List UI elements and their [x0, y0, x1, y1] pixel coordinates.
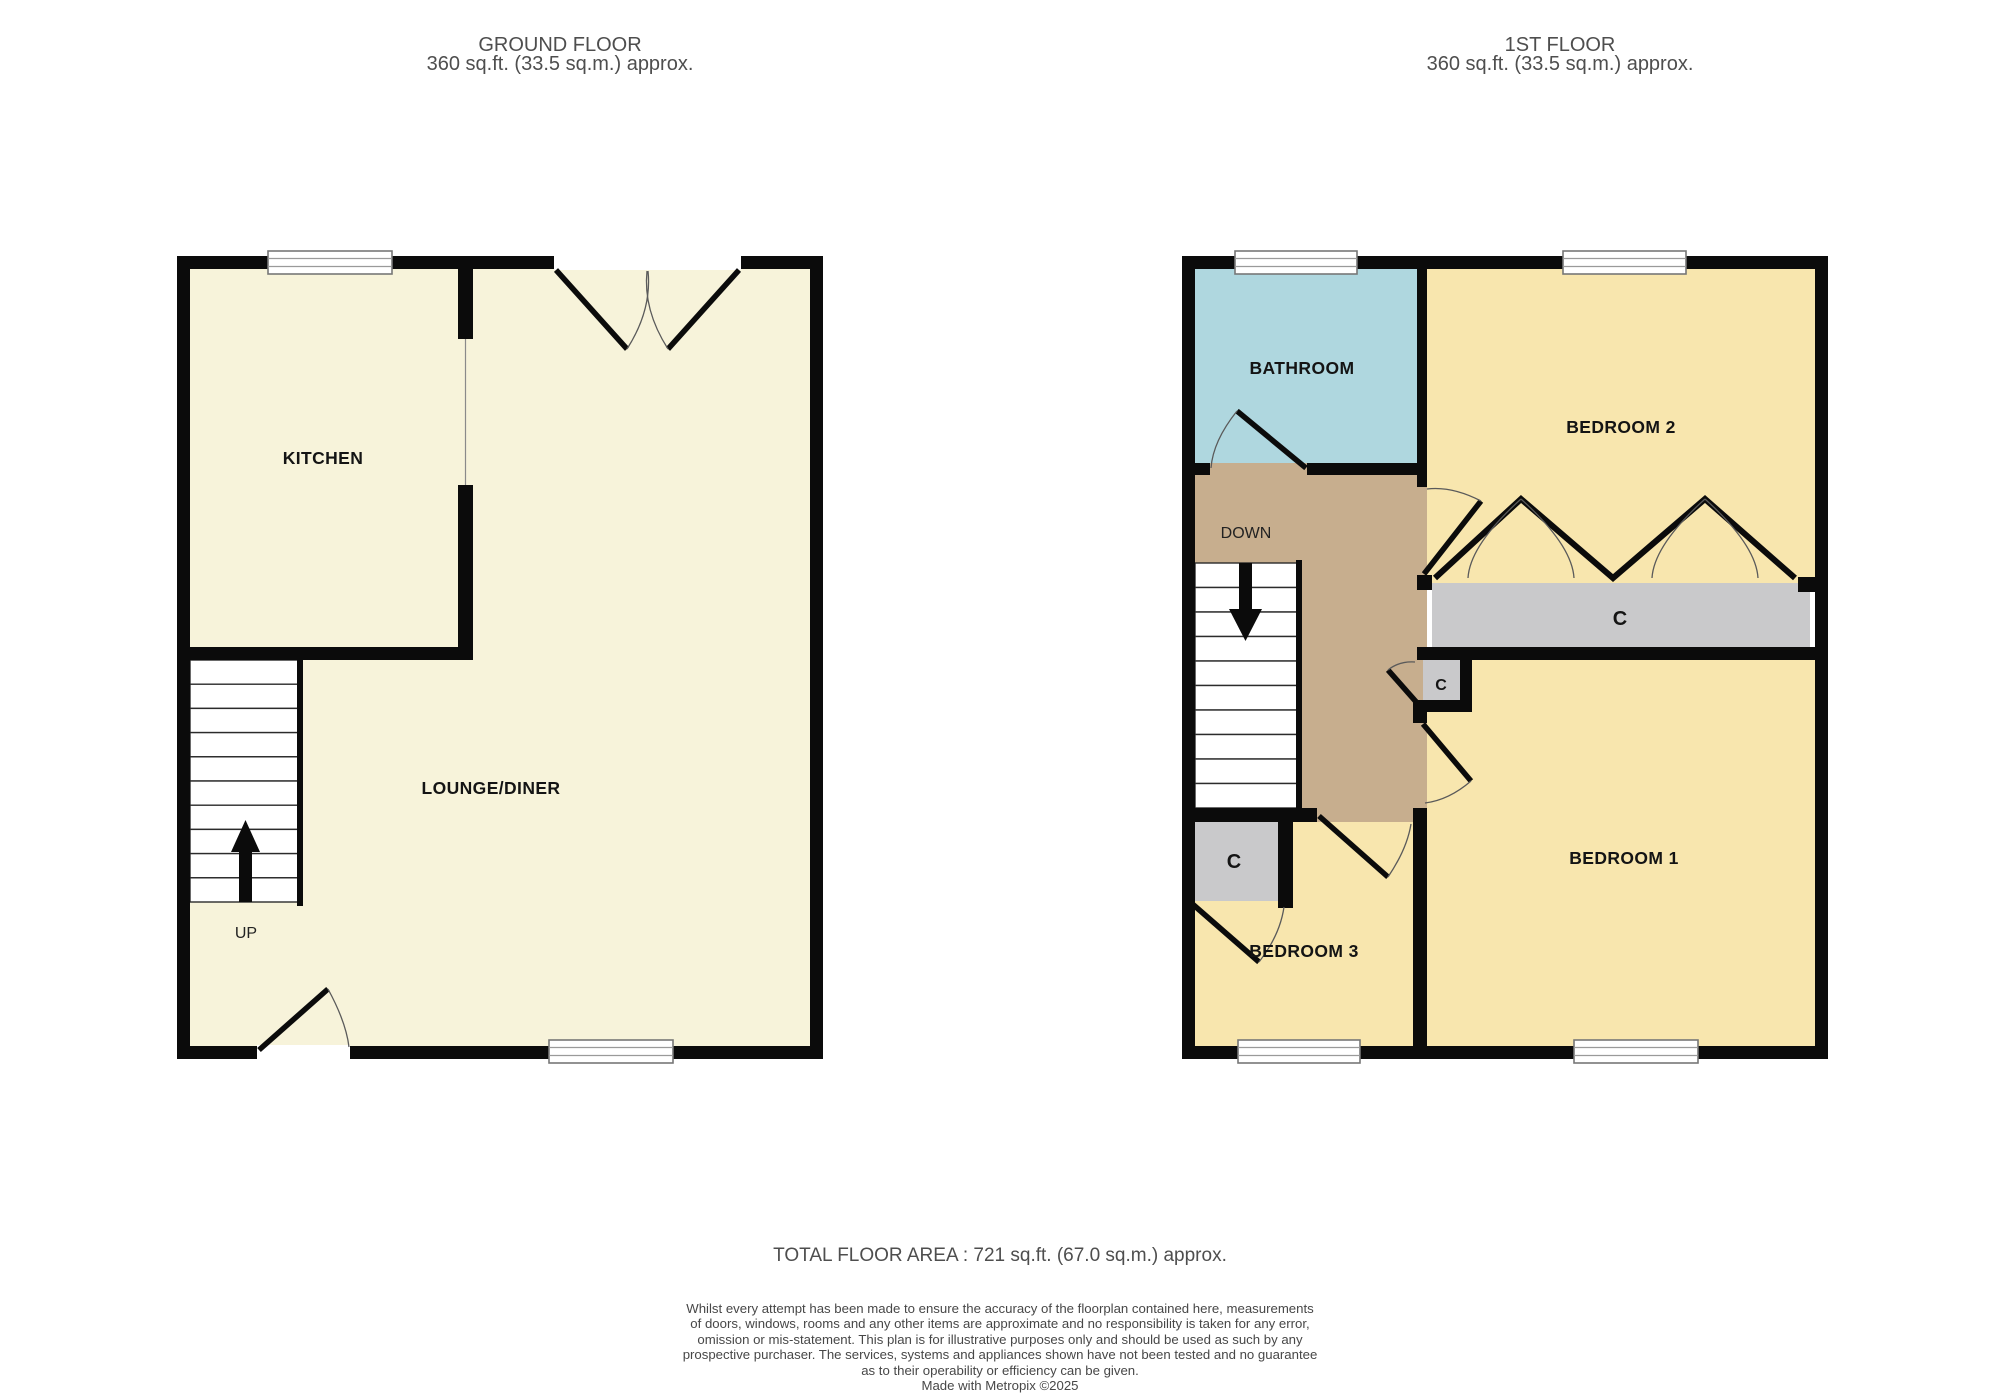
stair-tread [190, 708, 298, 732]
window-frame [1238, 1040, 1360, 1063]
window-frame [1574, 1040, 1698, 1063]
stair-tread [190, 733, 298, 757]
first-floor-plan: BATHROOM BEDROOM 2 BEDROOM 1 BEDROOM 3 D… [1182, 251, 1828, 1063]
stairs-down-label: DOWN [1221, 525, 1272, 542]
up-arrow-shaft [239, 848, 252, 902]
metropix-credit: Made with Metropix ©2025 [683, 1378, 1318, 1393]
bedroom2-label: BEDROOM 2 [1566, 417, 1676, 437]
floorplan-canvas: KITCHEN LOUNGE/DINER UP [0, 0, 2000, 1394]
kitchen-label: KITCHEN [283, 448, 364, 468]
bedroom1-window [1574, 1040, 1698, 1063]
lounge-diner-label: LOUNGE/DINER [422, 778, 561, 798]
bedroom3-window [1238, 1040, 1360, 1063]
kitchen-window [268, 251, 392, 274]
kitchen-divider-upper [458, 256, 473, 339]
wardrobe-closet-label: C [1613, 608, 1627, 630]
corner-closet-label: C [1227, 851, 1241, 873]
stair-tread [1195, 759, 1297, 784]
wall-right [1815, 256, 1828, 1059]
stair-tread [190, 757, 298, 781]
wall-right [810, 256, 823, 1059]
stair-side-wall [1296, 560, 1302, 810]
staircase-up [190, 656, 303, 906]
kitchen-bottom-wall [177, 647, 473, 660]
window-frame [1235, 251, 1357, 274]
bathroom-window [1235, 251, 1357, 274]
corner-closet-right-wall [1278, 822, 1293, 908]
window-frame [1563, 251, 1686, 274]
bedroom1-label: BEDROOM 1 [1569, 848, 1679, 868]
bedroom2-window [1563, 251, 1686, 274]
wall-left [1182, 256, 1195, 1059]
stairs-bottom-wall [1182, 808, 1317, 822]
kitchen-divider-lower [458, 485, 473, 660]
floorplan-page: GROUND FLOOR 360 sq.ft. (33.5 sq.m.) app… [0, 0, 2000, 1394]
small-closet-label: C [1435, 677, 1447, 694]
bathroom-bottom-wall-right [1307, 463, 1427, 475]
stair-tread [1195, 637, 1297, 662]
disclaimer: Whilst every attempt has been made to en… [683, 1301, 1318, 1393]
bedroom1-top-wall [1417, 647, 1815, 660]
lounge-window [549, 1040, 673, 1063]
ground-floor-plan: KITCHEN LOUNGE/DINER UP [177, 251, 823, 1063]
wardrobe-right-cap [1798, 577, 1815, 592]
disclaimer-line: as to their operability or efficiency ca… [683, 1363, 1318, 1378]
bathroom-bottom-wall-left [1182, 463, 1210, 475]
stair-tread [1195, 686, 1297, 711]
stair-tread [1195, 735, 1297, 760]
stair-tread [1195, 710, 1297, 735]
wardrobe-left-cap [1417, 575, 1432, 590]
stair-tread [1195, 661, 1297, 686]
patio-door-opening [554, 255, 741, 270]
stair-tread [190, 660, 298, 684]
staircase-down [1195, 560, 1302, 810]
stair-tread [1195, 784, 1297, 809]
bedroom3-bedroom1-divider [1413, 808, 1427, 1059]
stair-tread [190, 781, 298, 805]
disclaimer-line: omission or mis-statement. This plan is … [683, 1332, 1318, 1347]
bathroom-bedroom2-divider [1417, 256, 1427, 487]
stairs-up-label: UP [235, 925, 257, 942]
bathroom-label: BATHROOM [1250, 358, 1355, 378]
window-frame [268, 251, 392, 274]
disclaimer-line: prospective purchaser. The services, sys… [683, 1347, 1318, 1362]
stair-tread [190, 684, 298, 708]
bedroom3-label: BEDROOM 3 [1249, 941, 1359, 961]
stair-side-wall [297, 656, 303, 906]
disclaimer-line: of doors, windows, rooms and any other i… [683, 1316, 1318, 1331]
disclaimer-line: Whilst every attempt has been made to en… [683, 1301, 1318, 1316]
total-floor-area: TOTAL FLOOR AREA : 721 sq.ft. (67.0 sq.m… [773, 1245, 1227, 1267]
window-frame [549, 1040, 673, 1063]
front-door-opening [257, 1045, 350, 1060]
down-arrow-shaft [1239, 563, 1252, 613]
